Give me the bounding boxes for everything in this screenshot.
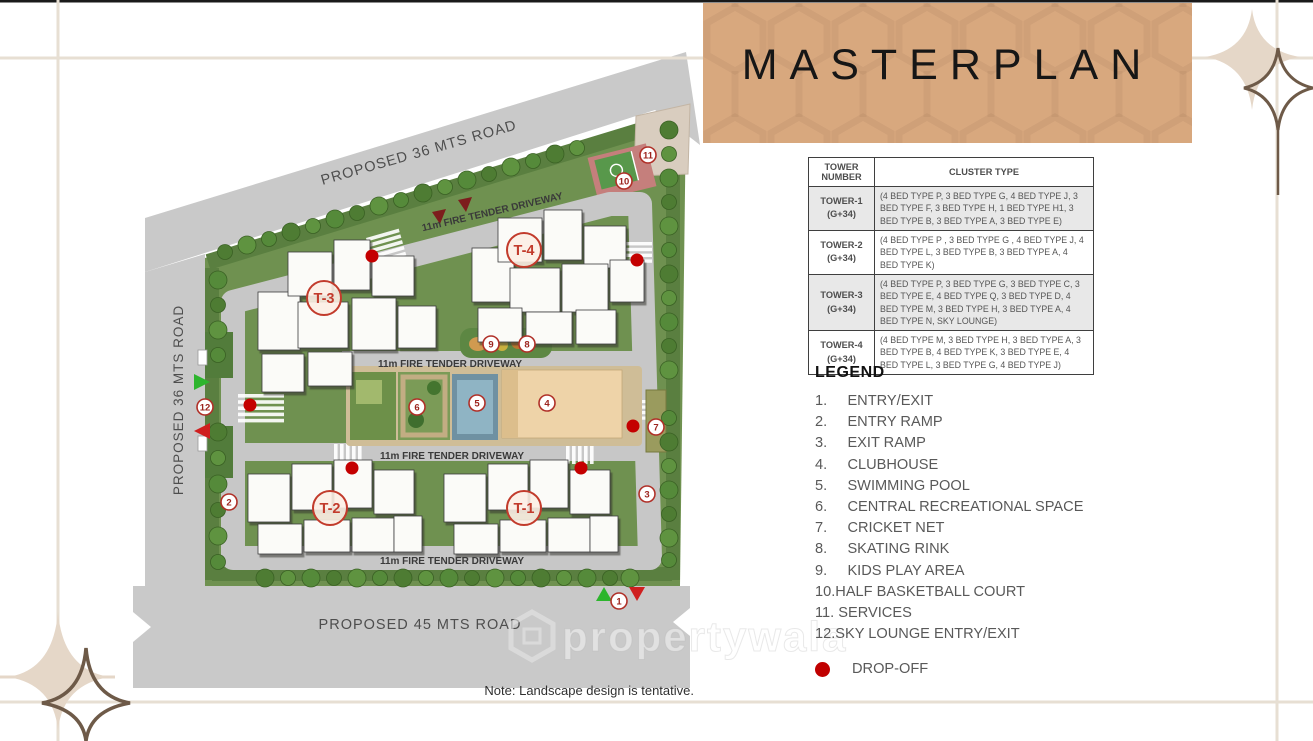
legend-item-entry-ramp: 2. ENTRY RAMP (815, 412, 1115, 433)
tree (660, 217, 678, 235)
tree (486, 569, 504, 587)
tree (211, 348, 226, 363)
legend-item-services: 11. SERVICES (815, 603, 1115, 624)
title-panel: MASTERPLAN (703, 3, 1192, 143)
tree (660, 265, 678, 283)
svg-text:T-4: T-4 (514, 243, 535, 259)
tree (662, 459, 677, 474)
marker-half-basketball-court: 10 (616, 173, 632, 189)
lawn (356, 380, 382, 404)
tree (662, 291, 677, 306)
table-row: TOWER-3(G+34) (4 BED TYPE P, 3 BED TYPE … (809, 274, 1094, 330)
legend-item-exit-ramp: 3. EXIT RAMP (815, 433, 1115, 454)
tree (660, 169, 678, 187)
svg-text:4: 4 (544, 398, 550, 409)
svg-text:T-1: T-1 (514, 501, 535, 517)
tower-number: TOWER-1 (810, 195, 873, 209)
tree (660, 481, 678, 499)
tree (373, 571, 388, 586)
svg-text:9: 9 (488, 339, 493, 350)
tree (482, 167, 497, 182)
marker-entry-exit: 1 (611, 593, 627, 609)
tower-number: TOWER-2 (810, 239, 873, 253)
svg-text:5: 5 (474, 398, 480, 409)
svg-text:11: 11 (643, 150, 654, 161)
tree (327, 571, 342, 586)
tree (211, 555, 226, 570)
dropoff-legend: DROP-OFF (815, 661, 928, 677)
svg-text:T-3: T-3 (314, 291, 335, 307)
dropoff-dot (575, 462, 588, 475)
tree (662, 339, 677, 354)
tree (211, 298, 226, 313)
sparkle-filled-bottom-left (8, 612, 110, 730)
tree (458, 171, 476, 189)
tree (302, 569, 320, 587)
tree (414, 184, 432, 202)
tree (350, 206, 365, 221)
tower-floors: (G+34) (810, 252, 873, 266)
marker-sky-lounge-entry-exit: 12 (197, 399, 213, 415)
sign-board (198, 436, 207, 451)
tree (557, 571, 572, 586)
tower-table: TOWER NUMBER CLUSTER TYPE TOWER-1(G+34) … (808, 157, 1094, 375)
tower-number: TOWER-4 (810, 339, 873, 353)
tree (662, 553, 677, 568)
tree (578, 569, 596, 587)
tree (662, 507, 677, 522)
svg-text:12: 12 (200, 402, 211, 413)
cluster-type: (4 BED TYPE P , 3 BED TYPE G , 4 BED TYP… (875, 230, 1094, 274)
legend-item-swimming-pool: 5. SWIMMING POOL (815, 476, 1115, 497)
cluster-type: (4 BED TYPE P, 3 BED TYPE G, 3 BED TYPE … (875, 274, 1094, 330)
dropoff-dot (346, 462, 359, 475)
tree (662, 147, 677, 162)
tower-badge-t4: T-4 (507, 233, 541, 267)
tree (511, 571, 526, 586)
table-header-row: TOWER NUMBER CLUSTER TYPE (809, 158, 1094, 187)
sparkle-filled-top-right (1205, 9, 1300, 110)
dropoff-dot (627, 420, 640, 433)
tree (394, 569, 412, 587)
legend-item-central-recreational-space: 6. CENTRAL RECREATIONAL SPACE (815, 497, 1115, 518)
cluster-type: (4 BED TYPE P, 3 BED TYPE G, 4 BED TYPE … (875, 187, 1094, 231)
legend-item-clubhouse: 4. CLUBHOUSE (815, 455, 1115, 476)
marker-skating-rink: 8 (519, 336, 535, 352)
tree (660, 529, 678, 547)
svg-text:1: 1 (616, 596, 622, 607)
tree (238, 236, 256, 254)
svg-text:10: 10 (619, 176, 630, 187)
header-tower-number: TOWER NUMBER (809, 158, 875, 187)
amenity-strip (346, 366, 642, 446)
marker-entry-ramp: 2 (221, 494, 237, 510)
tree (370, 197, 388, 215)
legend: LEGEND 1. ENTRY/EXIT 2. ENTRY RAMP 3. EX… (815, 364, 1115, 645)
tree (603, 571, 618, 586)
left-road-label: PROPOSED 36 MTS ROAD (171, 305, 186, 495)
tree (281, 571, 296, 586)
driveway-label: 11m FIRE TENDER DRIVEWAY (378, 359, 522, 370)
marker-exit-ramp: 3 (639, 486, 655, 502)
tree (660, 121, 678, 139)
dropoff-dot (366, 250, 379, 263)
legend-item-half-basketball-court: 10.HALF BASKETBALL COURT (815, 582, 1115, 603)
masterplan-page: PROPOSED 36 MTS ROAD PROPOSED 36 MTS ROA… (0, 0, 1313, 741)
marker-cricket-net: 7 (648, 419, 664, 435)
tree (621, 569, 639, 587)
legend-item-sky-lounge-entry-exit: 12.SKY LOUNGE ENTRY/EXIT (815, 624, 1115, 645)
sign-board (198, 350, 207, 365)
tower-badge-t1: T-1 (507, 491, 541, 525)
marker-central-recreational-space: 6 (409, 399, 425, 415)
tree (532, 569, 550, 587)
header-cluster-type: CLUSTER TYPE (875, 158, 1094, 187)
tree (660, 313, 678, 331)
dropoff-dot (631, 254, 644, 267)
legend-item-cricket-net: 7. CRICKET NET (815, 518, 1115, 539)
watermark-text: propertywala (562, 613, 847, 660)
tree (570, 141, 585, 156)
tree (209, 271, 227, 289)
clubhouse-wing (502, 370, 518, 438)
svg-text:2: 2 (226, 497, 231, 508)
tree (662, 243, 677, 258)
svg-text:7: 7 (653, 422, 658, 433)
tree (438, 180, 453, 195)
tree (282, 223, 300, 241)
page-title: MASTERPLAN (703, 3, 1192, 90)
clubhouse (502, 370, 622, 438)
legend-item-skating-rink: 8. SKATING RINK (815, 539, 1115, 560)
dropoff-label: DROP-OFF (852, 661, 928, 677)
tree (209, 423, 227, 441)
svg-text:T-2: T-2 (320, 501, 341, 517)
driveway-label: 11m FIRE TENDER DRIVEWAY (380, 451, 524, 462)
tree (465, 571, 480, 586)
table-row: TOWER-1(G+34) (4 BED TYPE P, 3 BED TYPE … (809, 187, 1094, 231)
legend-heading: LEGEND (815, 364, 1115, 382)
legend-item-kids-play-area: 9. KIDS PLAY AREA (815, 561, 1115, 582)
tree (326, 210, 344, 228)
tree (262, 232, 277, 247)
tree (211, 451, 226, 466)
table-row: TOWER-2(G+34) (4 BED TYPE P , 3 BED TYPE… (809, 230, 1094, 274)
tree (218, 245, 233, 260)
tower-badge-t3: T-3 (307, 281, 341, 315)
rec-tree (427, 381, 441, 395)
marker-services: 11 (640, 147, 656, 163)
driveway-label: 11m FIRE TENDER DRIVEWAY (380, 556, 524, 567)
svg-text:6: 6 (414, 402, 419, 413)
watermark: propertywala (511, 612, 847, 660)
marker-kids-play-area: 9 (483, 336, 499, 352)
tree (660, 433, 678, 451)
tree (256, 569, 274, 587)
tower-number: TOWER-3 (810, 289, 873, 303)
tree (209, 321, 227, 339)
dropoff-dot (244, 399, 257, 412)
tree (662, 195, 677, 210)
tower-floors: (G+34) (810, 208, 873, 222)
tree (502, 158, 520, 176)
dropoff-dot-icon (815, 662, 830, 677)
tree (348, 569, 366, 587)
tree (209, 527, 227, 545)
tree (546, 145, 564, 163)
tree (526, 154, 541, 169)
marker-clubhouse: 4 (539, 395, 555, 411)
tree (394, 193, 409, 208)
svg-text:3: 3 (644, 489, 649, 500)
tree (660, 361, 678, 379)
marker-swimming-pool: 5 (469, 395, 485, 411)
svg-text:8: 8 (524, 339, 529, 350)
tree (419, 571, 434, 586)
tower-floors: (G+34) (810, 303, 873, 317)
bottom-road-label: PROPOSED 45 MTS ROAD (319, 617, 522, 633)
tower-badge-t2: T-2 (313, 491, 347, 525)
legend-item-entry-exit: 1. ENTRY/EXIT (815, 391, 1115, 412)
tree (209, 475, 227, 493)
note-text: Note: Landscape design is tentative. (484, 683, 694, 698)
tree (440, 569, 458, 587)
tree (306, 219, 321, 234)
